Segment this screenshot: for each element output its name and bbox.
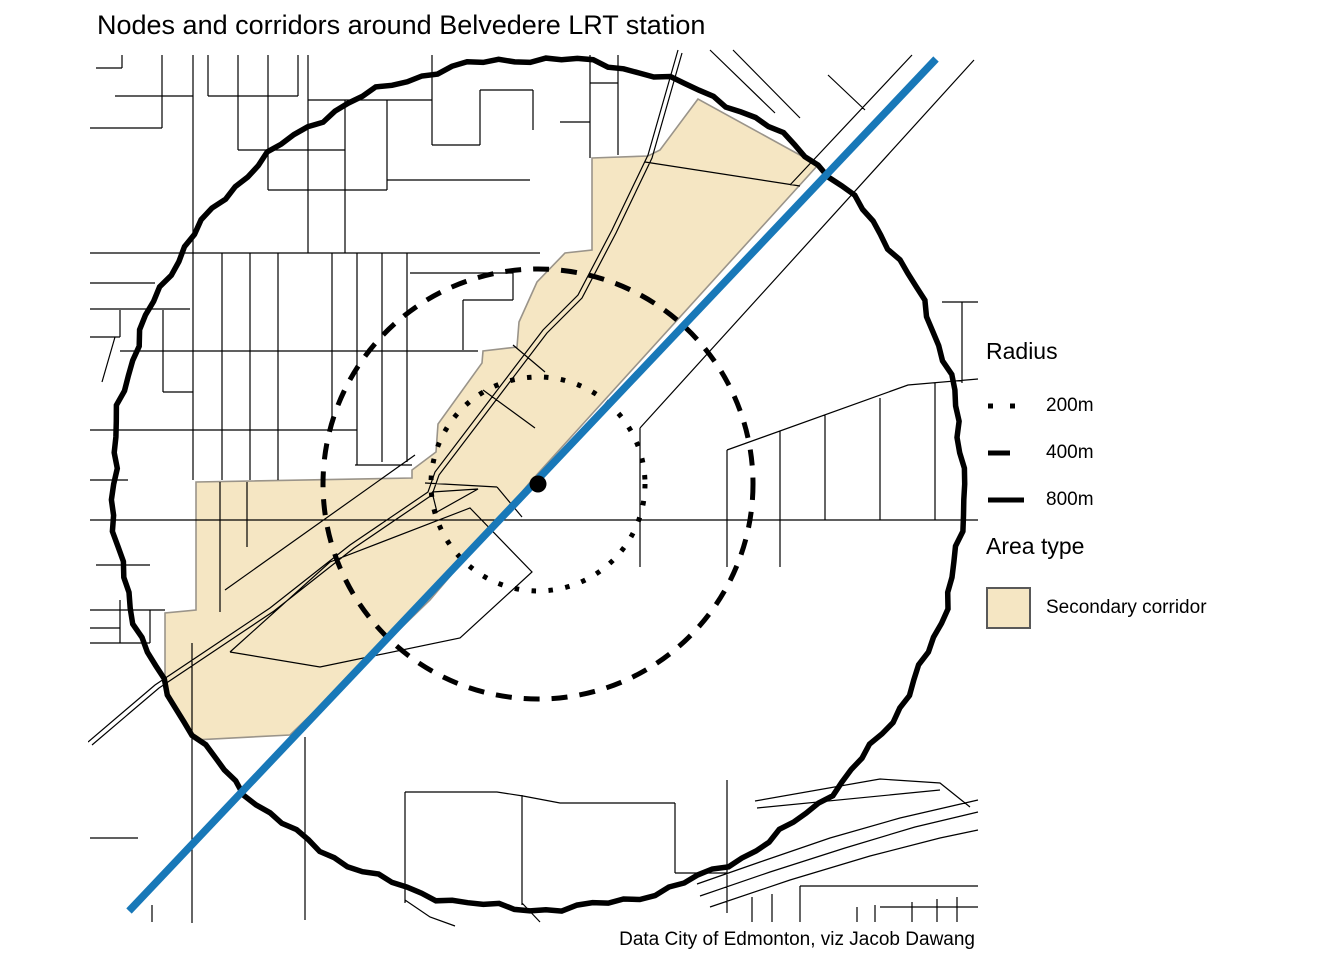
legend: Radius 200m400m800m Area type Secondary … xyxy=(986,338,1336,630)
legend-radius-title: Radius xyxy=(986,338,1336,364)
legend-area-group: Area type Secondary corridor xyxy=(986,533,1336,630)
legend-area-title: Area type xyxy=(986,533,1336,559)
map-panel xyxy=(88,50,978,926)
station-dot xyxy=(530,476,547,493)
legend-item-800m: 800m xyxy=(986,476,1336,523)
legend-radius-group: Radius 200m400m800m xyxy=(986,338,1336,523)
caption: Data City of Edmonton, viz Jacob Dawang xyxy=(0,929,975,951)
legend-item-400m: 400m xyxy=(986,429,1336,476)
legend-400m-label: 400m xyxy=(1046,442,1094,464)
legend-200m-label: 200m xyxy=(1046,395,1094,417)
figure: Nodes and corridors around Belvedere LRT… xyxy=(0,0,1344,960)
legend-400m-line-sample xyxy=(986,443,1030,463)
legend-area-item: Secondary corridor xyxy=(986,586,1336,630)
secondary-corridor-swatch xyxy=(986,587,1031,629)
legend-200m-line-sample xyxy=(986,396,1030,416)
legend-800m-line-sample xyxy=(986,490,1030,510)
legend-item-200m: 200m xyxy=(986,382,1336,429)
legend-area-label: Secondary corridor xyxy=(1046,597,1207,619)
legend-800m-label: 800m xyxy=(1046,489,1094,511)
